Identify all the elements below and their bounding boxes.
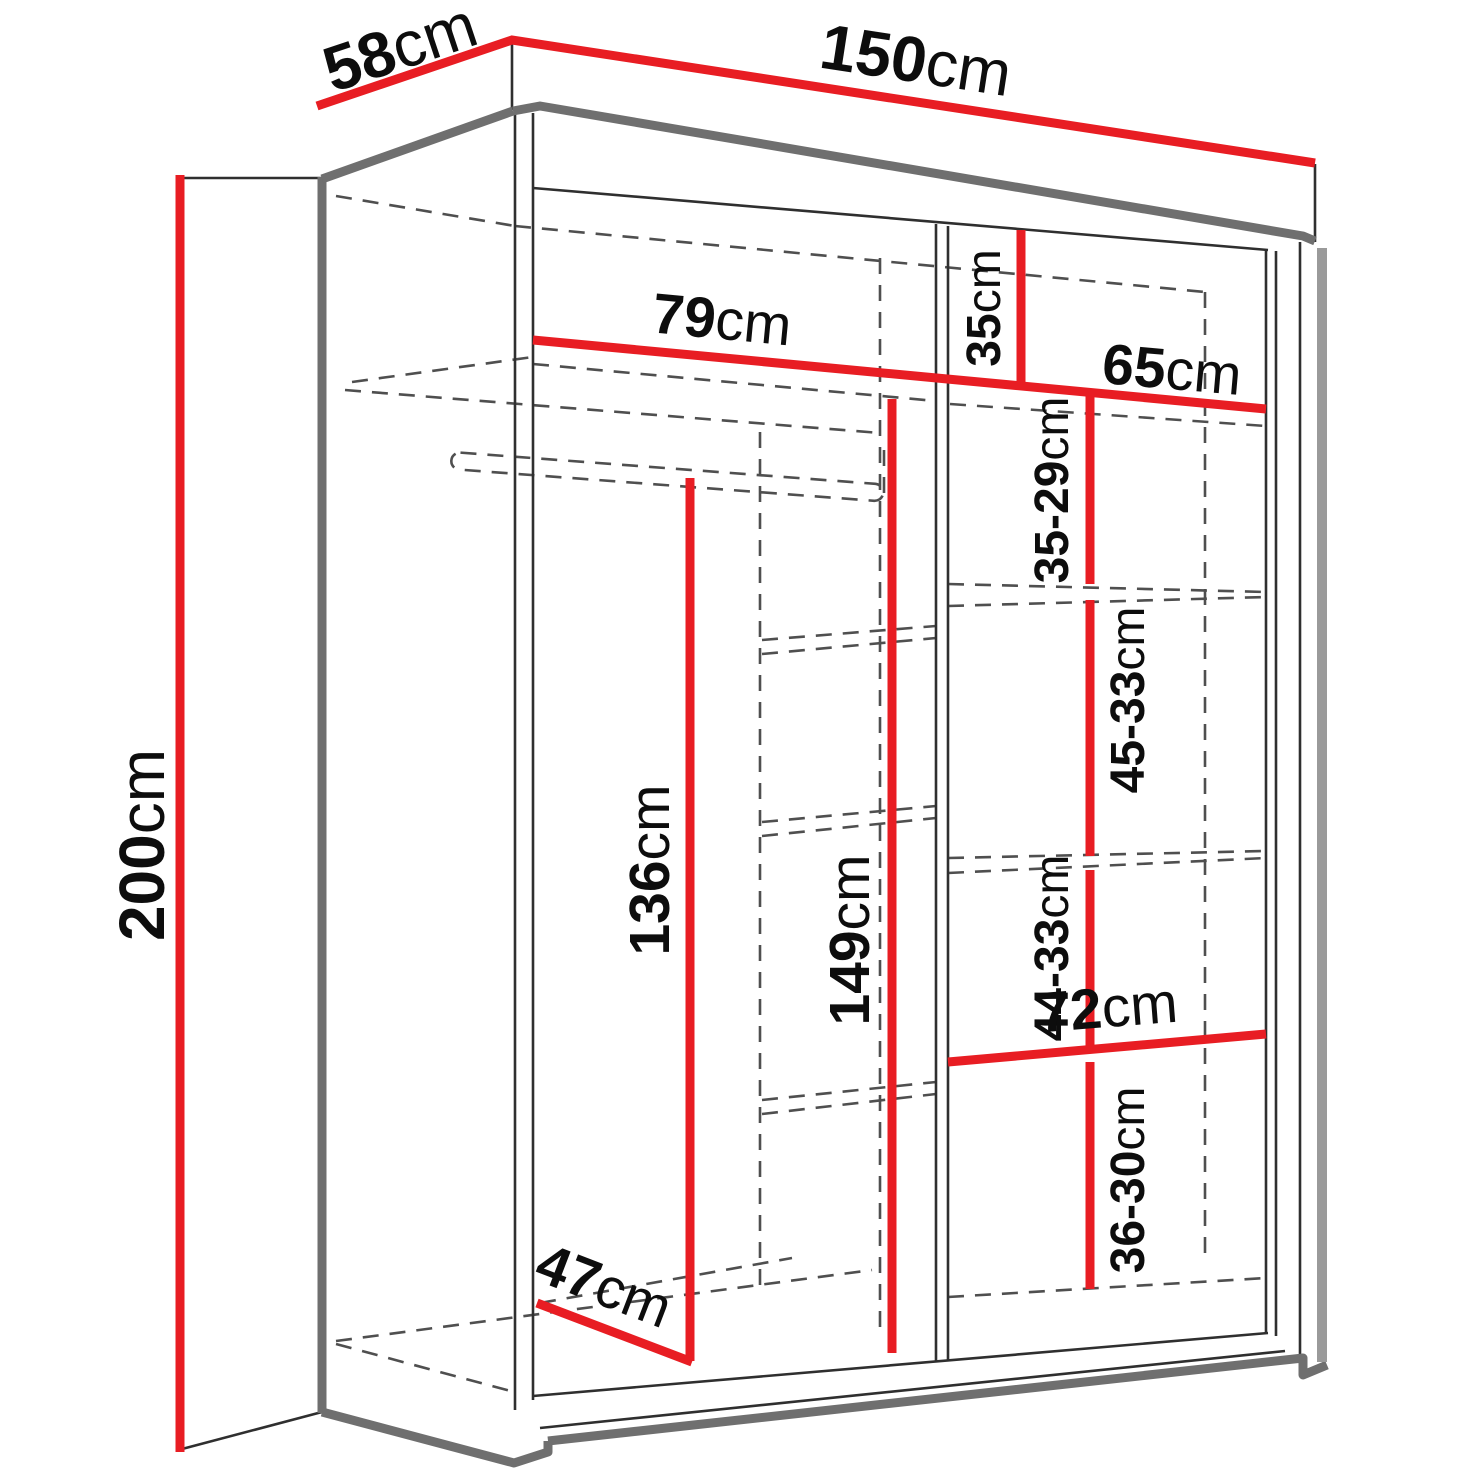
- base-left-foot: [322, 1412, 548, 1463]
- dim-label-depth: 58cm: [314, 0, 485, 106]
- dim-label-left-shelf-width: 79cm: [650, 281, 795, 358]
- dim-label-right-gap-4: 36-30cm: [1102, 1087, 1155, 1274]
- carcass-thick-outline: [322, 106, 1327, 1463]
- diagram-canvas: 200cm 58cm 150cm 79cm 35cm 65cm 35-29cm …: [0, 0, 1480, 1480]
- dim-label-hanging-height: 136cm: [618, 784, 682, 955]
- ceiling-front-edge: [533, 188, 1268, 250]
- base-bottom-edge: [548, 1358, 1327, 1441]
- dim-label-right-gap-2: 45-33cm: [1102, 607, 1155, 794]
- dim-label-height: 200cm: [106, 749, 178, 941]
- wardrobe-dimension-diagram: 200cm 58cm 150cm 79cm 35cm 65cm 35-29cm …: [0, 0, 1480, 1480]
- side-panel-top-edge: [322, 111, 513, 179]
- dim-label-right-top-height: 35cm: [958, 249, 1011, 366]
- dim-label-lower-shelf-width: 72cm: [1036, 971, 1180, 1046]
- dim-label-right-gap-1: 35-29cm: [1026, 397, 1079, 584]
- height-tick-bottom: [182, 1412, 322, 1449]
- dim-label-right-shelf-width: 65cm: [1100, 332, 1244, 408]
- dim-label-center-height: 149cm: [818, 854, 882, 1025]
